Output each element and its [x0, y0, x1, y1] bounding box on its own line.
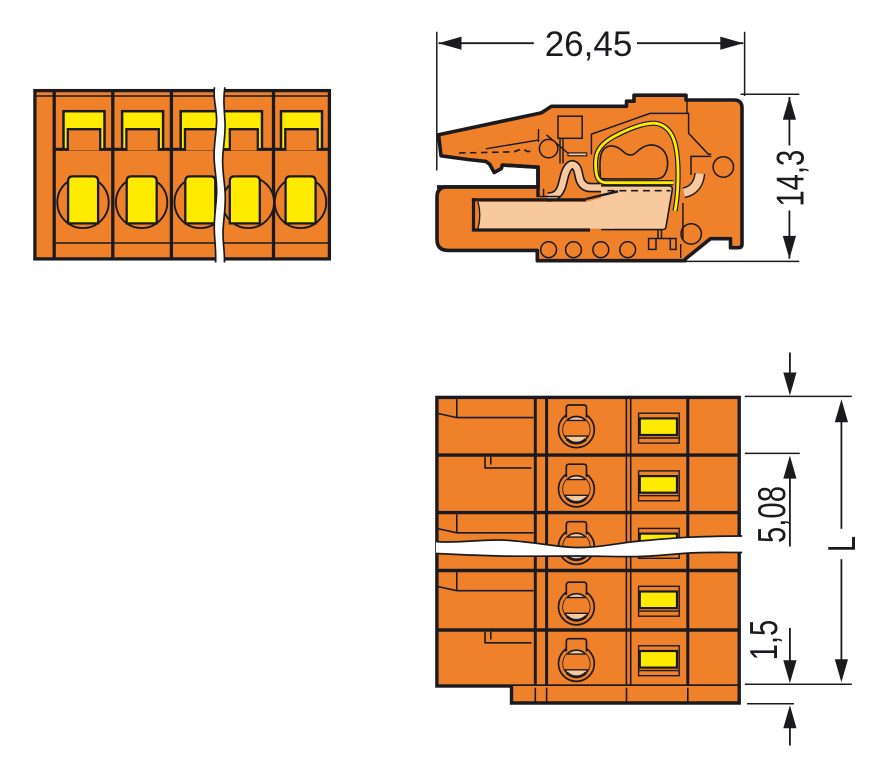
svg-text:1,5: 1,5 [743, 620, 786, 661]
svg-text:14,3: 14,3 [770, 150, 813, 207]
svg-text:L: L [821, 536, 864, 552]
svg-text:5,08: 5,08 [751, 486, 794, 543]
svg-text:26,45: 26,45 [545, 25, 633, 64]
